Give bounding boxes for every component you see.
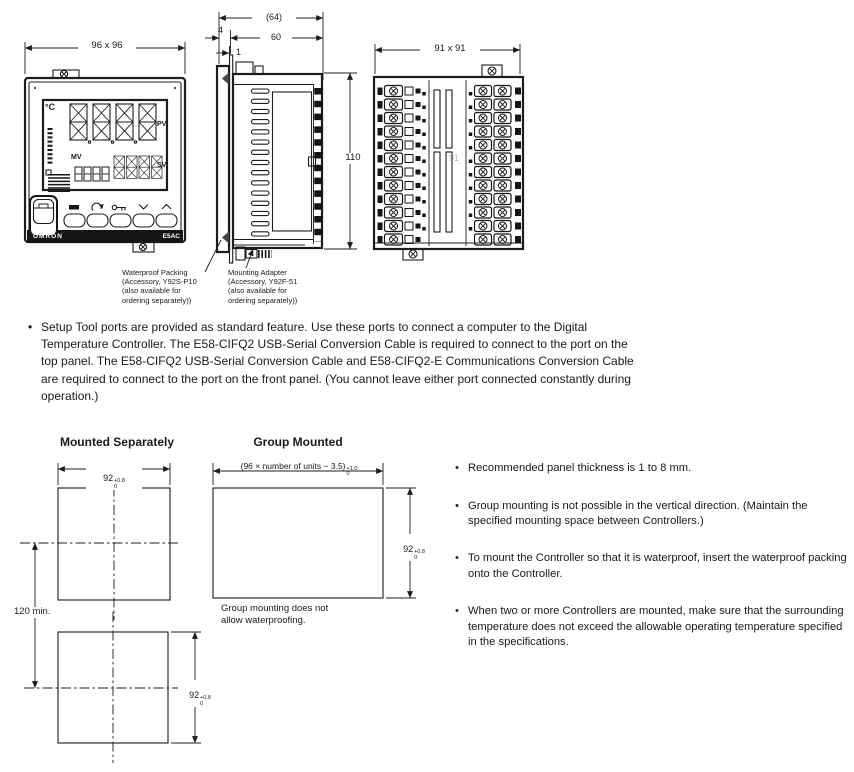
model-label: E5AC <box>146 233 180 240</box>
rear-center-dim-ghost: 91 <box>449 153 459 163</box>
group-width-formula: (96 × number of units − 3.5) <box>241 461 346 471</box>
rear-view-drawing <box>374 44 523 260</box>
setup-port-cover <box>30 196 57 236</box>
omron-logo: OMRON <box>33 233 63 240</box>
waterproof-packing-top <box>222 72 230 85</box>
panel-cutout-group <box>213 463 416 598</box>
mounting-adapter-label: Mounting Adapter (Accessory, Y92F-51 (al… <box>228 268 332 305</box>
level-key-icon <box>69 205 79 210</box>
side-dim-panel: 1 <box>236 47 241 57</box>
list-item: • Recommended panel thickness is 1 to 8 … <box>455 461 847 476</box>
mode-key-icon <box>92 203 101 210</box>
list-item: • Group mounting is not possible in the … <box>455 499 847 530</box>
bullet-glyph: • <box>455 551 468 566</box>
top-mount-screw <box>53 70 79 78</box>
terminal-block-right <box>474 84 522 246</box>
bullet-glyph: • <box>28 319 41 336</box>
side-view-drawing <box>205 12 357 272</box>
bullet-glyph: • <box>455 604 468 619</box>
label-plate <box>273 92 312 231</box>
up-key <box>156 214 177 227</box>
front-dim-label: 96 x 96 <box>78 41 136 52</box>
mounted-separately-title: Mounted Separately <box>42 436 192 450</box>
cutout-width-dim: 92+0.80 <box>86 463 142 490</box>
side-dim-height: 110 <box>340 153 366 164</box>
lcd-display <box>43 100 167 192</box>
group-mounted-title: Group Mounted <box>238 436 358 450</box>
side-dim-bezel: 4 <box>218 25 223 35</box>
top-setup-port <box>236 62 263 74</box>
datasheet-page: 96 x 96 °C PV SV MV OMRON E5AC (64) 60 4… <box>0 0 854 772</box>
up-key-icon <box>162 205 171 210</box>
pv-label: PV <box>157 121 166 129</box>
celsius-indicator: °C <box>45 102 55 112</box>
setup-tool-note-text: Setup Tool ports are provided as standar… <box>41 319 646 405</box>
terminal-block-left <box>377 84 423 246</box>
vent-slots <box>252 89 270 236</box>
sv-label: SV <box>157 162 166 170</box>
rear-dim-label: 91 x 91 <box>420 44 480 55</box>
setup-tool-note: • Setup Tool ports are provided as stand… <box>28 319 646 405</box>
mv-label: MV <box>71 154 82 162</box>
bullet-glyph: • <box>455 499 468 514</box>
rear-bottom-screw <box>403 249 423 260</box>
front-view-drawing <box>25 42 185 252</box>
bullet-glyph: • <box>455 461 468 476</box>
shift-key-icon <box>112 205 126 210</box>
cutout-height-dim: 92+0.80 <box>180 680 220 707</box>
mounting-notes-list: • Recommended panel thickness is 1 to 8 … <box>455 443 847 672</box>
down-key-icon <box>139 205 148 210</box>
rear-top-screw <box>482 65 502 77</box>
waterproof-packing-bottom <box>222 231 230 244</box>
list-item: • When two or more Controllers are mount… <box>455 604 847 650</box>
vertical-pitch-dim: 120 min. <box>12 607 52 618</box>
list-item: • To mount the Controller so that it is … <box>455 551 847 582</box>
side-dim-total: (64) <box>252 12 296 22</box>
shift-key <box>110 214 131 227</box>
level-key <box>64 214 85 227</box>
group-mount-note: Group mounting does not allow waterproof… <box>221 603 381 626</box>
group-cutout-height-dim: 92+0.80 <box>394 534 434 561</box>
front-keys <box>64 203 177 227</box>
group-width-dim: (96 × number of units − 3.5)+1.00 <box>210 452 388 478</box>
mode-key <box>87 214 108 227</box>
waterproof-packing-label: Waterproof Packing (Accessory, Y92S-P10 … <box>122 268 226 305</box>
down-key <box>133 214 154 227</box>
bottom-mount-screw <box>133 242 154 252</box>
side-dim-depth: 60 <box>260 32 292 42</box>
